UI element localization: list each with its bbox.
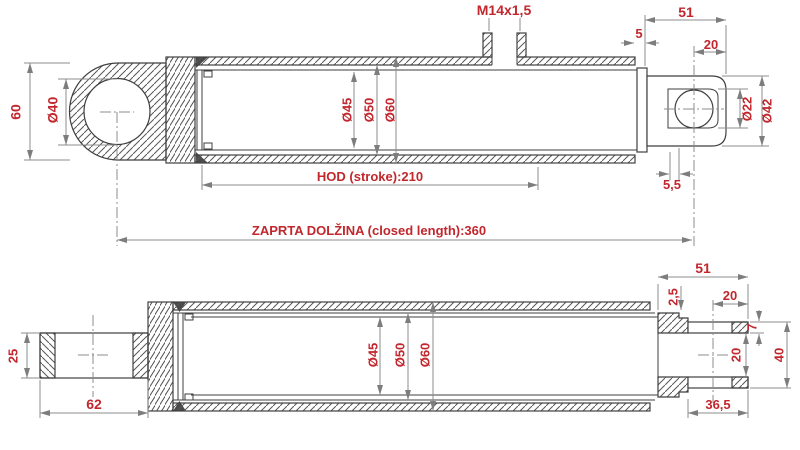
- dim-mid-50: Ø50: [361, 98, 376, 123]
- dim-rod-end-diameter: Ø42: [759, 99, 774, 124]
- dim-pin-bore-bottom: 20: [728, 348, 743, 362]
- dim-tube-outer: 40: [771, 348, 786, 362]
- dim-wall-gap: 5: [635, 26, 642, 41]
- barrel-bottom: [173, 302, 658, 411]
- dim-rod-end-length-bottom: 51: [695, 260, 711, 276]
- dim-bore-45: Ø45: [339, 98, 354, 123]
- dim-closed-length: ZAPRTA DOLŽINA (closed length):360: [252, 223, 486, 238]
- dim-outer-60-bottom: Ø60: [417, 343, 432, 368]
- dim-eye-height: 60: [8, 104, 24, 120]
- dim-mid-50-bottom: Ø50: [392, 343, 407, 368]
- end-cap-bottom: [148, 302, 186, 411]
- dim-rod-end-length: 51: [678, 4, 694, 20]
- top-view: 60 Ø40 M14x1,5 5 51 20 Ø22 Ø42 5,5 Ø45 Ø…: [8, 2, 775, 246]
- dim-pin-to-end-bottom: 20: [723, 288, 737, 303]
- bottom-view: 25 62 Ø45 Ø50 Ø60 51 2,5 20 7 20 40 36,5: [5, 260, 791, 418]
- cylinder-drawing: 60 Ø40 M14x1,5 5 51 20 Ø22 Ø42 5,5 Ø45 Ø…: [0, 0, 800, 450]
- dim-pin-edge: 5,5: [663, 177, 681, 192]
- dim-pin-bore: Ø22: [739, 97, 754, 122]
- dim-tube-length: 62: [86, 396, 102, 412]
- dim-outer-60: Ø60: [382, 98, 397, 123]
- dim-port-thread: M14x1,5: [477, 2, 532, 18]
- barrel: [195, 57, 637, 163]
- rod-end-clevis: [637, 68, 726, 152]
- dim-step: 2,5: [666, 288, 680, 305]
- dim-bore-45-bottom: Ø45: [365, 343, 380, 368]
- dim-wall-thickness: 7: [745, 323, 759, 330]
- dim-pin-to-end: 20: [704, 37, 718, 52]
- dim-stroke: HOD (stroke):210: [317, 169, 423, 184]
- technical-drawing-canvas: 60 Ø40 M14x1,5 5 51 20 Ø22 Ø42 5,5 Ø45 Ø…: [0, 0, 800, 450]
- dim-eye-bore: Ø40: [45, 97, 61, 124]
- dim-tube-offset: 36,5: [705, 397, 730, 412]
- left-cross-tube: [40, 315, 148, 397]
- dim-tube-width: 25: [5, 349, 20, 363]
